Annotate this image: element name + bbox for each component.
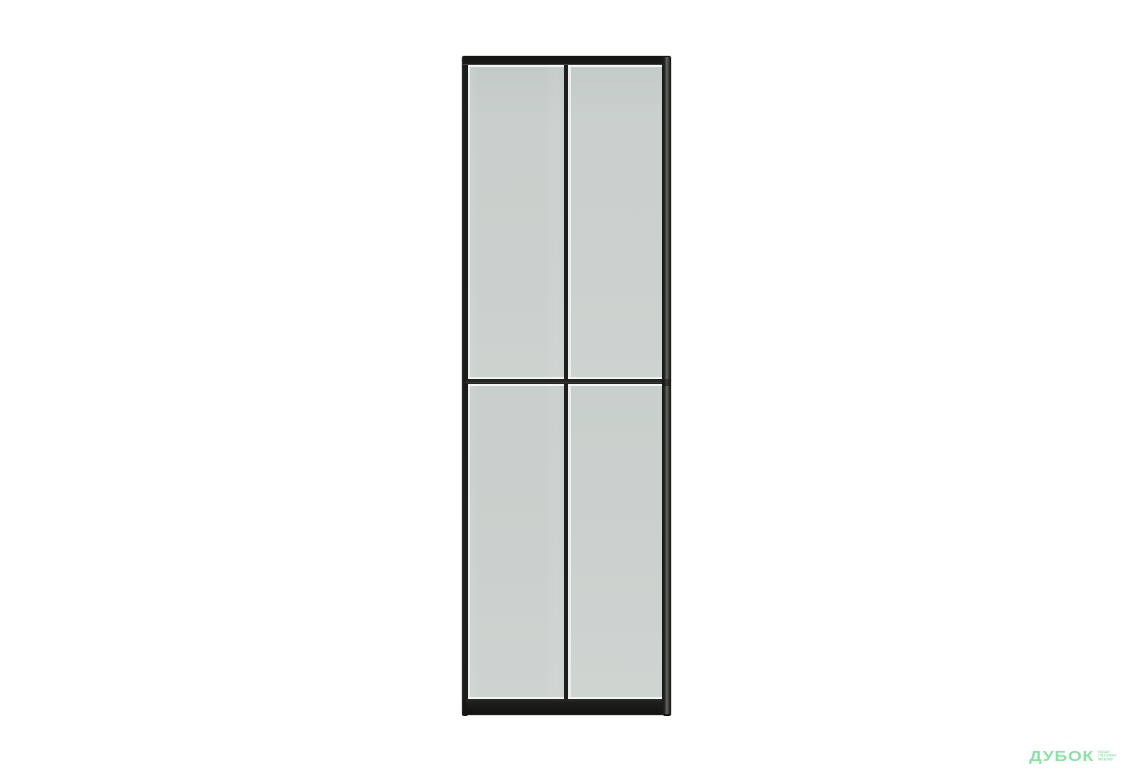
svg-text:ДУБОК: ДУБОК (1029, 748, 1094, 764)
svg-text:МЕБЛІВ: МЕБЛІВ (1098, 757, 1113, 761)
